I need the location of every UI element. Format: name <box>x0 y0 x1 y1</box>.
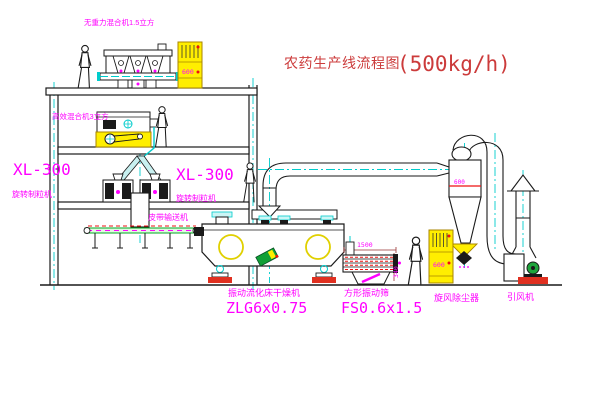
discharge-dot <box>137 83 140 86</box>
granulator-inlet <box>113 174 123 180</box>
label-cyclone: 旋风除尘器 <box>434 292 479 303</box>
granulator-block <box>159 183 168 199</box>
mixer2-block <box>103 120 116 129</box>
fan-housing <box>504 254 524 281</box>
mixer2-drive-box <box>96 132 151 147</box>
hopper-port <box>119 61 124 66</box>
fluid-bed-dryer <box>202 224 344 283</box>
foot-base <box>312 277 336 283</box>
dryer-foot-right <box>312 266 336 284</box>
feed-inlet <box>216 217 228 224</box>
label-dryer-model: ZLG6x0.75 <box>226 299 307 317</box>
label-sieve-model: FS0.6x1.5 <box>341 299 422 317</box>
stack-cap <box>511 175 535 191</box>
worker-head <box>247 163 253 169</box>
cyclone-vortex-finder <box>452 147 471 161</box>
fan-motor-hub <box>531 266 535 270</box>
granulator-dot <box>153 190 157 194</box>
port-cap <box>321 216 333 220</box>
granulator-block <box>105 183 114 199</box>
port-cap <box>259 216 271 220</box>
fan-base <box>518 277 548 284</box>
indicator-light <box>197 46 200 49</box>
cyclone-cone <box>449 197 481 243</box>
cyclone-rotary-valve <box>456 251 472 265</box>
discharge-chute <box>131 193 149 227</box>
label-granulator-mid-model: XL-300 <box>176 165 234 184</box>
indicator-light <box>197 71 200 74</box>
label-granulator-left-model: XL-300 <box>13 160 71 179</box>
motor-pulley <box>138 134 143 139</box>
dim-sieve-height: 340 <box>392 266 400 278</box>
belt-legs <box>92 233 193 248</box>
belt-roller <box>84 228 90 234</box>
granulator-inlet <box>150 174 160 180</box>
hopper-dot <box>137 70 140 73</box>
indicator-light <box>448 262 451 265</box>
foot-base <box>208 277 232 283</box>
gravity-mixer <box>97 44 179 88</box>
worker-head <box>82 45 89 52</box>
worker-head <box>159 107 165 113</box>
shaft-end-cap <box>97 72 100 81</box>
process-flow-drawing: 农药生产线流程图 (500kg/h) 无重力混合机1.5立方 高效混合机3立方 … <box>0 0 600 403</box>
dryer-foot-left <box>208 266 232 284</box>
induced-draft-fan <box>504 254 548 284</box>
indicator-light <box>448 235 451 238</box>
label-gravity-mixer: 无重力混合机1.5立方 <box>84 17 155 27</box>
control-cabinet-lower <box>429 230 453 283</box>
mixer-vent <box>158 44 166 50</box>
hopper-dot <box>120 70 123 73</box>
cabinet-upper-reading: 600 <box>182 68 194 76</box>
label-granulator-mid-name: 旋转制粒机 <box>176 193 216 203</box>
label-dryer-name: 振动流化床干燥机 <box>228 287 300 298</box>
label-fan: 引风机 <box>507 291 534 302</box>
label-granulator-left-name: 旋转制粒机 <box>12 189 52 199</box>
hopper-port <box>153 61 158 66</box>
hopper-dot <box>154 70 157 73</box>
control-cabinet-upper <box>178 42 202 88</box>
label-belt-conveyor: 皮带输送机 <box>148 212 188 222</box>
label-high-efficiency-mixer: 高效混合机3立方 <box>52 111 109 121</box>
floor-slab-top <box>46 88 257 95</box>
worker-figure <box>408 237 422 284</box>
cyclone-diameter-mark: 600 <box>454 179 465 186</box>
pesticide-line-flow-diagram: 农药生产线流程图 (500kg/h) 无重力混合机1.5立方 高效混合机3立方 … <box>0 0 600 403</box>
port-cap <box>278 216 290 220</box>
cabinet-lower-reading: 600 <box>433 261 445 269</box>
worker-head <box>412 237 419 244</box>
mixer-leg <box>146 80 156 88</box>
cyclone-separator <box>449 147 481 267</box>
foot-plate <box>316 273 332 277</box>
dim-sieve-length: 1500 <box>357 241 373 249</box>
sieve-end-dot <box>398 262 401 265</box>
granulator-dot <box>116 190 120 194</box>
belt-drive <box>194 227 204 236</box>
belt-conveyor <box>84 226 204 248</box>
worker-figure <box>78 45 91 88</box>
diagram-title: 农药生产线流程图 <box>284 55 400 71</box>
diagram-title-capacity: (500kg/h) <box>397 52 511 76</box>
hopper-port <box>136 61 141 66</box>
granulator-block <box>122 183 131 199</box>
mixer-leg <box>118 80 128 88</box>
label-sieve-name: 方形振动筛 <box>344 287 389 298</box>
feed-inlet-cap <box>212 212 232 217</box>
granulator-left <box>103 174 133 202</box>
floor-slab-3 <box>58 202 249 209</box>
mixer-lid <box>104 50 172 56</box>
sieve-inlet <box>346 242 354 255</box>
foot-plate <box>212 273 228 277</box>
